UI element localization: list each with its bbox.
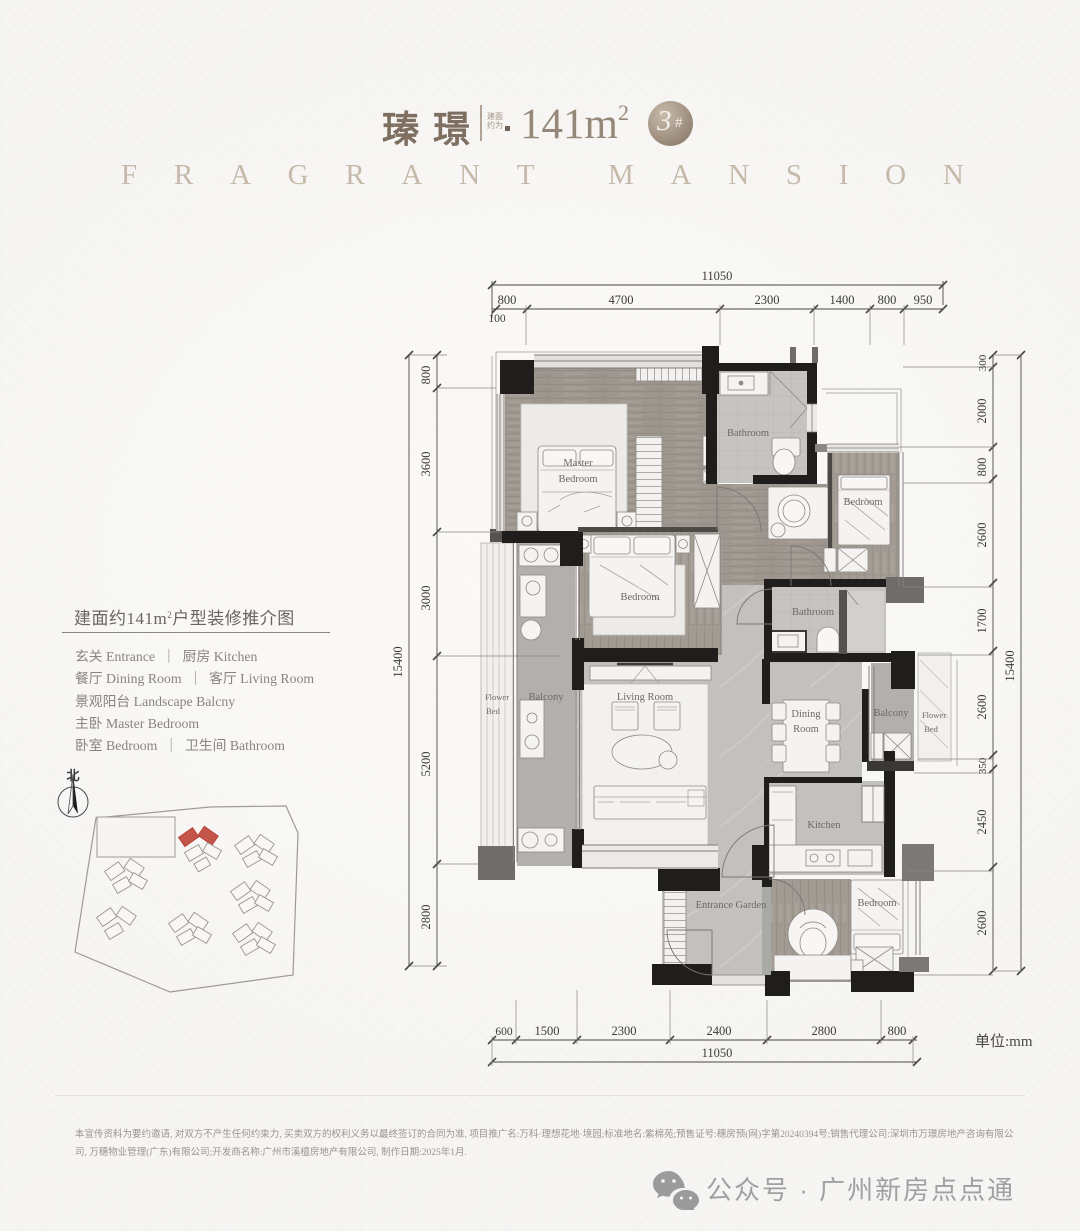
svg-text:5200: 5200 bbox=[419, 752, 433, 777]
svg-text:11050: 11050 bbox=[702, 269, 733, 283]
svg-text:800: 800 bbox=[498, 293, 517, 307]
svg-text:300: 300 bbox=[977, 354, 989, 371]
svg-text:2000: 2000 bbox=[975, 399, 989, 424]
svg-text:2600: 2600 bbox=[975, 911, 989, 936]
svg-text:1700: 1700 bbox=[975, 609, 989, 634]
svg-text:Bedroom: Bedroom bbox=[857, 898, 896, 909]
svg-text:950: 950 bbox=[914, 293, 933, 307]
svg-text:Master: Master bbox=[563, 458, 593, 469]
svg-text:600: 600 bbox=[495, 1026, 513, 1038]
svg-text:15400: 15400 bbox=[1003, 650, 1017, 681]
svg-text:Bathroom: Bathroom bbox=[727, 428, 769, 439]
svg-text:2300: 2300 bbox=[612, 1024, 637, 1038]
svg-text:11050: 11050 bbox=[702, 1046, 733, 1060]
svg-text:Balcony: Balcony bbox=[874, 708, 910, 719]
svg-text:2400: 2400 bbox=[707, 1024, 732, 1038]
svg-text:2800: 2800 bbox=[419, 905, 433, 930]
svg-text:2300: 2300 bbox=[755, 293, 780, 307]
svg-text:Bedroom: Bedroom bbox=[558, 474, 597, 485]
svg-text:Entrance Garden: Entrance Garden bbox=[696, 900, 768, 911]
svg-text:Balcony: Balcony bbox=[529, 692, 565, 703]
svg-text:Bed: Bed bbox=[486, 706, 500, 716]
svg-text:Kitchen: Kitchen bbox=[807, 820, 841, 831]
svg-text:Bathroom: Bathroom bbox=[792, 607, 834, 618]
svg-text:Room: Room bbox=[793, 724, 819, 735]
svg-text:3000: 3000 bbox=[419, 586, 433, 611]
svg-text:1500: 1500 bbox=[535, 1024, 560, 1038]
svg-text:单位:mm: 单位:mm bbox=[975, 1033, 1033, 1050]
svg-text:Living Room: Living Room bbox=[617, 692, 673, 703]
svg-text:4700: 4700 bbox=[609, 293, 634, 307]
svg-text:Bedroom: Bedroom bbox=[620, 592, 659, 603]
svg-text:800: 800 bbox=[419, 366, 433, 385]
svg-text:Dining: Dining bbox=[791, 709, 821, 720]
svg-text:800: 800 bbox=[975, 458, 989, 477]
svg-text:800: 800 bbox=[888, 1024, 907, 1038]
svg-text:15400: 15400 bbox=[391, 646, 405, 677]
svg-text:Bed: Bed bbox=[924, 724, 938, 734]
svg-text:1400: 1400 bbox=[830, 293, 855, 307]
svg-text:800: 800 bbox=[878, 293, 897, 307]
svg-text:3600: 3600 bbox=[419, 452, 433, 477]
svg-text:Flower: Flower bbox=[922, 710, 946, 720]
svg-text:Flower: Flower bbox=[485, 692, 509, 702]
svg-text:2800: 2800 bbox=[812, 1024, 837, 1038]
svg-text:2450: 2450 bbox=[975, 810, 989, 835]
svg-text:100: 100 bbox=[488, 313, 506, 325]
svg-text:Bedroom: Bedroom bbox=[843, 497, 882, 508]
svg-text:2600: 2600 bbox=[975, 523, 989, 548]
svg-text:350: 350 bbox=[977, 757, 989, 774]
svg-text:2600: 2600 bbox=[975, 695, 989, 720]
